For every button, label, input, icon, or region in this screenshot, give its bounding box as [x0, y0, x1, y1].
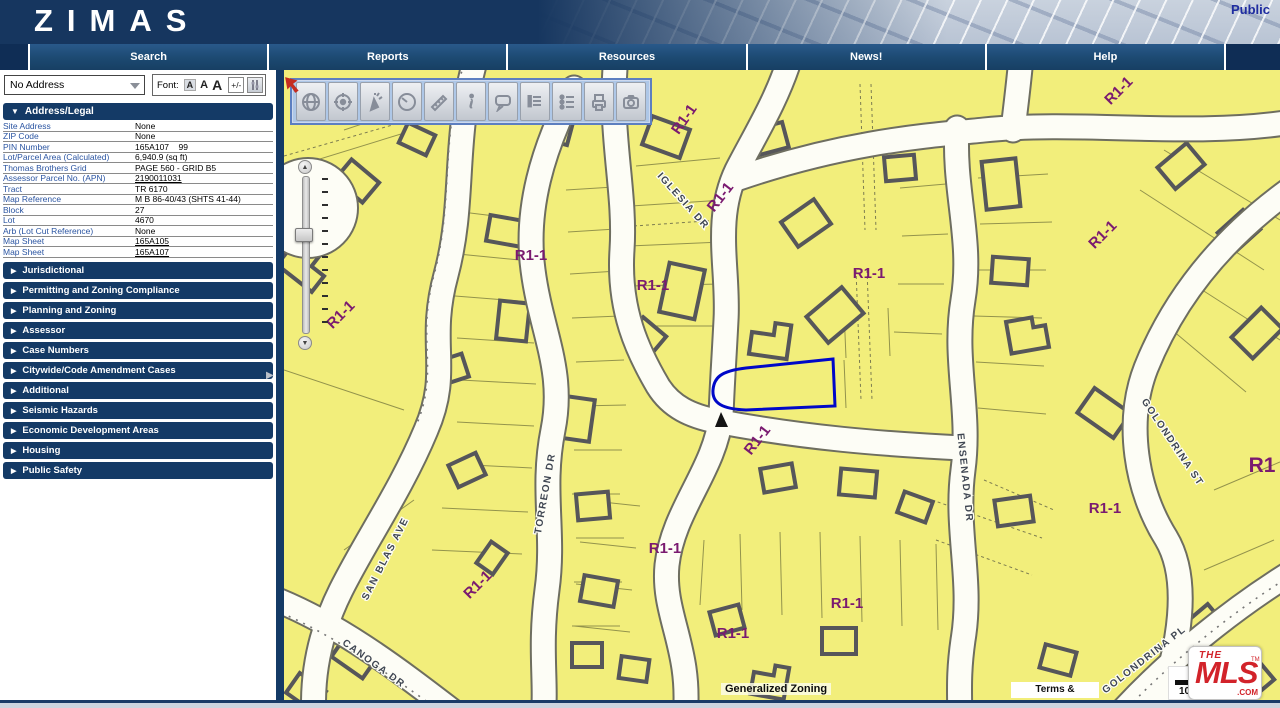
- section-label: Citywide/Code Amendment Cases: [22, 365, 175, 376]
- row-label: ZIP Code: [3, 132, 135, 142]
- zoning-map-canvas[interactable]: IGLESIA DRTORREON DRSAN BLAS AVECANOGA D…: [284, 70, 1280, 700]
- sidebar-item-public-safety[interactable]: ▶Public Safety: [3, 462, 273, 479]
- triangle-right-icon: ▶: [11, 343, 16, 360]
- row-label: PIN Number: [3, 142, 135, 152]
- zone-label: R1-1: [717, 625, 750, 642]
- building: [1039, 644, 1076, 675]
- sidebar-item-citywide-code-amendment-cases[interactable]: ▶Citywide/Code Amendment Cases: [3, 362, 273, 379]
- select-arrow-icon: [365, 92, 385, 112]
- row-label: Lot/Parcel Area (Calculated): [3, 153, 135, 163]
- locate-tool-button[interactable]: [328, 82, 358, 121]
- triangle-right-icon: ▶: [11, 303, 16, 320]
- triangle-down-icon: ▼: [11, 103, 19, 120]
- triangle-right-icon: ▶: [11, 383, 16, 400]
- address-dropdown-value: No Address: [10, 79, 64, 91]
- sidebar-item-housing[interactable]: ▶Housing: [3, 442, 273, 459]
- row-value: TR 6170: [135, 184, 168, 194]
- row-value: None: [135, 132, 155, 142]
- row-value: PAGE 560 - GRID B5: [135, 163, 216, 173]
- zone-label: R1: [1249, 454, 1276, 477]
- building: [839, 468, 877, 497]
- building: [619, 656, 650, 682]
- font-size-medium-button[interactable]: A: [200, 79, 208, 91]
- zoom-slider: ▲ ▼: [296, 160, 332, 352]
- sidebar-section-list: ▶Jurisdictional▶Permitting and Zoning Co…: [3, 262, 273, 482]
- row-value: None: [135, 121, 155, 131]
- globe-icon: [301, 92, 321, 112]
- mls-com-text: .COM: [1237, 688, 1258, 697]
- sidebar-collapse-arrow[interactable]: ▶: [266, 370, 274, 381]
- sidebar-item-seismic-hazards[interactable]: ▶Seismic Hazards: [3, 402, 273, 419]
- zoom-out-button[interactable]: ▼: [298, 336, 312, 350]
- zoning-map[interactable]: IGLESIA DRTORREON DRSAN BLAS AVECANOGA D…: [284, 70, 1280, 700]
- zimas-app: ZIMAS Public SearchReportsResourcesNews!…: [0, 0, 1280, 708]
- building: [496, 301, 530, 342]
- zoom-tick: [322, 308, 328, 310]
- zoom-tick: [322, 230, 328, 232]
- zoom-tick: [322, 256, 328, 258]
- row-label: Lot: [3, 216, 135, 226]
- table-row: Assessor Parcel No. (APN)2190011031: [3, 174, 273, 185]
- zoom-tick: [322, 321, 328, 323]
- tab-reports[interactable]: Reports: [269, 44, 506, 70]
- font-plusminus-button[interactable]: +/-: [228, 77, 244, 93]
- section-label: Planning and Zoning: [22, 305, 116, 316]
- zimas-logo: ZIMAS: [34, 3, 200, 39]
- sidebar-item-jurisdictional[interactable]: ▶Jurisdictional: [3, 262, 273, 279]
- table-row: Lot4670: [3, 216, 273, 227]
- clock-tool-button[interactable]: [392, 82, 422, 121]
- sidebar-item-additional[interactable]: ▶Additional: [3, 382, 273, 399]
- sidebar-item-assessor[interactable]: ▶Assessor: [3, 322, 273, 339]
- locate-icon: [333, 92, 353, 112]
- row-label: Assessor Parcel No. (APN): [3, 174, 135, 184]
- triangle-right-icon: ▶: [11, 323, 16, 340]
- building: [576, 492, 610, 521]
- triangle-right-icon: ▶: [11, 283, 16, 300]
- zone-label: R1-1: [515, 247, 548, 264]
- sidebar-item-planning-and-zoning[interactable]: ▶Planning and Zoning: [3, 302, 273, 319]
- section-label: Assessor: [22, 325, 65, 336]
- zone-label: R1-1: [1089, 500, 1122, 517]
- legend-icon: [557, 92, 577, 112]
- table-row: TractTR 6170: [3, 184, 273, 195]
- triangle-right-icon: ▶: [11, 443, 16, 460]
- row-value: M B 86-40/43 (SHTS 41-44): [135, 195, 241, 205]
- the-mls-logo[interactable]: THE MLS TM .COM: [1188, 646, 1262, 700]
- generalized-zoning-label: Generalized Zoning: [721, 683, 831, 695]
- building: [994, 496, 1033, 527]
- table-row: Arb (Lot Cut Reference)None: [3, 226, 273, 237]
- font-label: Font:: [157, 80, 179, 91]
- report-tool-button[interactable]: [520, 82, 550, 121]
- photo-tool-button[interactable]: [616, 82, 646, 121]
- font-settings-button[interactable]: [247, 77, 263, 93]
- triangle-right-icon: ▶: [11, 423, 16, 440]
- row-label: Tract: [3, 184, 135, 194]
- table-row: ZIP CodeNone: [3, 132, 273, 143]
- zoom-tick: [322, 282, 328, 284]
- zoom-tick: [322, 191, 328, 193]
- terms-and-conditions-link[interactable]: Terms & Conditions: [1011, 682, 1099, 698]
- tab-help[interactable]: Help: [987, 44, 1224, 70]
- row-value: 27: [135, 205, 144, 215]
- table-row: Thomas Brothers GridPAGE 560 - GRID B5: [3, 163, 273, 174]
- table-row: PIN Number165A107 99: [3, 142, 273, 153]
- triangle-right-icon: ▶: [11, 263, 16, 280]
- comment-icon: [493, 92, 513, 112]
- measure-icon: [429, 92, 449, 112]
- zone-label: R1-1: [853, 265, 886, 282]
- table-row: Lot/Parcel Area (Calculated)6,940.9 (sq …: [3, 153, 273, 164]
- photo-icon: [621, 92, 641, 112]
- section-label: Economic Development Areas: [22, 425, 158, 436]
- zoom-tick: [322, 269, 328, 271]
- measure-tool-button[interactable]: [424, 82, 454, 121]
- table-row: Site AddressNone: [3, 121, 273, 132]
- tab-news[interactable]: News!: [748, 44, 985, 70]
- table-row: Map Sheet165A105: [3, 237, 273, 248]
- row-label: Thomas Brothers Grid: [3, 163, 135, 173]
- building: [572, 643, 602, 667]
- section-title: Address/Legal: [25, 106, 94, 117]
- zoom-tick: [322, 295, 328, 297]
- chevron-down-icon: [130, 83, 140, 89]
- info-tool-button[interactable]: [456, 82, 486, 121]
- row-value: 4670: [135, 216, 154, 226]
- clock-icon: [397, 92, 417, 112]
- building: [982, 158, 1021, 209]
- row-value: None: [135, 226, 155, 236]
- pan-northwest-arrow-icon[interactable]: [284, 76, 302, 94]
- tab-search[interactable]: Search: [30, 44, 267, 70]
- select-arrow-tool-button[interactable]: [360, 82, 390, 121]
- row-label: Map Sheet: [3, 237, 135, 247]
- section-label: Seismic Hazards: [22, 405, 98, 416]
- mls-word-text: MLS: [1195, 655, 1257, 691]
- section-label: Permitting and Zoning Compliance: [22, 285, 179, 296]
- section-label: Housing: [22, 445, 60, 456]
- zoom-slider-thumb[interactable]: [295, 228, 313, 242]
- sidebar: No Address Font: A A A +/-: [0, 70, 276, 700]
- zoom-in-button[interactable]: ▲: [298, 160, 312, 174]
- section-label: Case Numbers: [22, 345, 89, 356]
- triangle-right-icon: ▶: [11, 363, 16, 380]
- row-value-link[interactable]: 2190011031: [135, 174, 182, 184]
- map-toolbar: [290, 78, 652, 125]
- row-value-link[interactable]: 165A107: [135, 247, 169, 257]
- sidebar-item-economic-development-areas[interactable]: ▶Economic Development Areas: [3, 422, 273, 439]
- sidebar-map-divider: [276, 70, 284, 700]
- columns-slider-icon: [249, 79, 261, 91]
- table-row: Block27: [3, 205, 273, 216]
- tab-resources[interactable]: Resources: [508, 44, 745, 70]
- row-label: Site Address: [3, 121, 135, 131]
- address-legal-table: Site AddressNoneZIP CodeNonePIN Number16…: [3, 121, 273, 258]
- table-row: Map Sheet165A107: [3, 247, 273, 258]
- row-value: 6,940.9 (sq ft): [135, 153, 187, 163]
- address-dropdown[interactable]: No Address: [4, 75, 145, 95]
- comment-tool-button[interactable]: [488, 82, 518, 121]
- zone-label: R1-1: [637, 277, 670, 294]
- print-icon: [589, 92, 609, 112]
- building: [884, 155, 916, 182]
- zoom-tick: [322, 217, 328, 219]
- section-label: Jurisdictional: [22, 265, 84, 276]
- zoom-tick: [322, 204, 328, 206]
- section-label: Additional: [22, 385, 68, 396]
- font-size-small-button[interactable]: A: [184, 79, 197, 91]
- building: [760, 463, 796, 492]
- sidebar-item-case-numbers[interactable]: ▶Case Numbers: [3, 342, 273, 359]
- zoom-tick: [322, 243, 328, 245]
- zoom-slider-track[interactable]: [302, 176, 310, 334]
- row-label: Arb (Lot Cut Reference): [3, 226, 135, 236]
- legend-tool-button[interactable]: [552, 82, 582, 121]
- triangle-right-icon: ▶: [11, 403, 16, 420]
- app-header: ZIMAS Public: [0, 0, 1280, 44]
- font-size-control: Font: A A A +/-: [152, 74, 266, 96]
- row-value: 165A107 99: [135, 142, 188, 152]
- triangle-right-icon: ▶: [11, 463, 16, 480]
- row-label: Map Reference: [3, 195, 135, 205]
- row-value-link[interactable]: 165A105: [135, 237, 169, 247]
- sidebar-item-permitting-and-zoning-compliance[interactable]: ▶Permitting and Zoning Compliance: [3, 282, 273, 299]
- section-header-address-legal[interactable]: ▼Address/Legal: [3, 103, 273, 120]
- zone-label: R1-1: [831, 595, 864, 612]
- building: [580, 575, 618, 607]
- report-icon: [525, 92, 545, 112]
- table-row: Map ReferenceM B 86-40/43 (SHTS 41-44): [3, 195, 273, 206]
- zone-label: R1-1: [649, 540, 682, 557]
- building: [991, 257, 1029, 285]
- font-size-large-button[interactable]: A: [212, 77, 222, 93]
- print-tool-button[interactable]: [584, 82, 614, 121]
- info-icon: [461, 92, 481, 112]
- mls-tm-text: TM: [1251, 657, 1260, 663]
- zoom-tick: [322, 178, 328, 180]
- window-bottom-strip: [0, 703, 1280, 708]
- section-label: Public Safety: [22, 465, 82, 476]
- building: [822, 628, 856, 654]
- row-label: Map Sheet: [3, 247, 135, 257]
- row-label: Block: [3, 205, 135, 215]
- main-nav-tabbar: SearchReportsResourcesNews!Help: [0, 44, 1280, 70]
- public-mode-label: Public: [1231, 2, 1270, 17]
- sidebar-controls: No Address Font: A A A +/-: [0, 70, 276, 100]
